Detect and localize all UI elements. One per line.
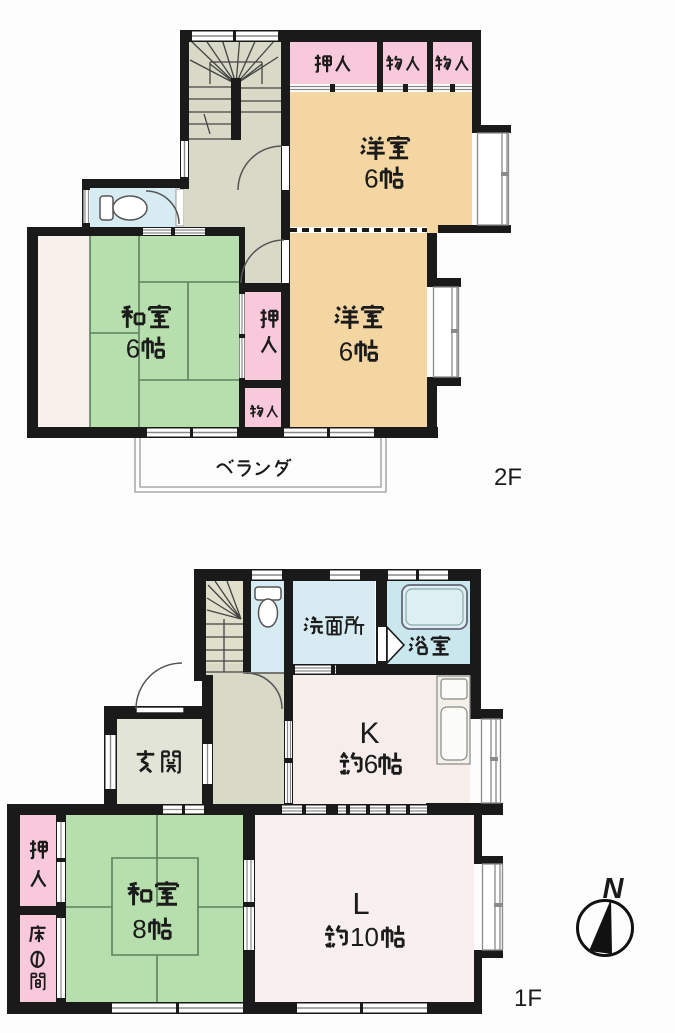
svg-text:K: K — [359, 717, 379, 750]
svg-text:6: 6 — [364, 163, 378, 193]
svg-text:L: L — [352, 886, 369, 921]
svg-text:10: 10 — [350, 922, 379, 952]
svg-text:8: 8 — [132, 914, 146, 944]
svg-text:6: 6 — [126, 333, 140, 363]
svg-text:2F: 2F — [494, 464, 522, 491]
svg-text:6: 6 — [339, 336, 353, 366]
svg-text:6: 6 — [364, 749, 378, 779]
svg-text:N: N — [603, 873, 625, 905]
svg-text:1F: 1F — [514, 985, 542, 1012]
